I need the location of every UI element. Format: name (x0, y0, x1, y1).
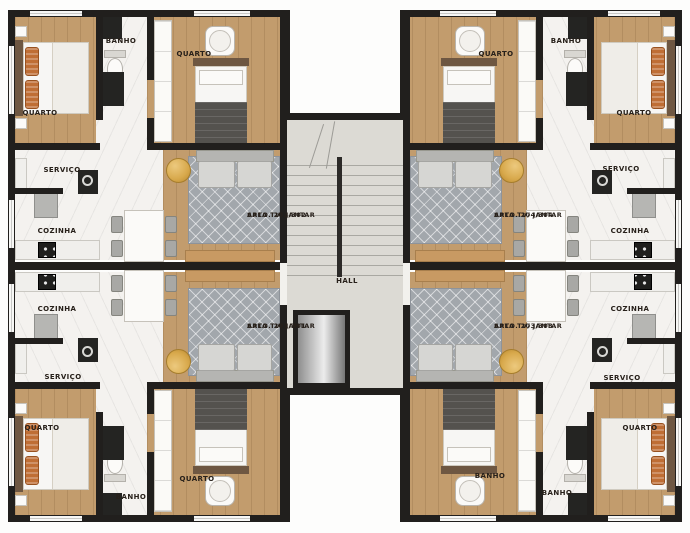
apto-number: APTO. 203/303 (494, 322, 553, 330)
apto-number: APTO. 201/301 (247, 322, 306, 330)
apto-number: APTO. 202/302 (247, 211, 306, 219)
apto-number: APTO. 204/304 (494, 211, 553, 219)
room-label-quarto: QUARTO (176, 50, 211, 58)
room-label-servico: SERVIÇO (602, 165, 639, 173)
room-label-quarto: QUARTO (616, 109, 651, 117)
room-label-banho: BANHO (551, 37, 581, 45)
room-label-banho: BANHO (116, 493, 146, 501)
room-label-banho: BANHO (475, 472, 505, 480)
room-label-quarto: QUARTO (179, 475, 214, 483)
room-label-banho: BANHO (106, 37, 136, 45)
room-label-quarto: QUARTO (24, 424, 59, 432)
room-label-quarto: QUARTO (22, 109, 57, 117)
room-label-servico: SERVIÇO (603, 374, 640, 382)
room-label-servico: SERVIÇO (44, 373, 81, 381)
hall-label: HALL (336, 277, 358, 285)
room-label-cozinha: COZINHA (38, 305, 77, 313)
floor-plan: QUARTO BANHO QUARTO SERVIÇO COZINHA QUAR… (0, 0, 690, 533)
room-label-quarto: QUARTO (622, 424, 657, 432)
room-label-quarto: QUARTO (478, 50, 513, 58)
room-label-servico: SERVIÇO (43, 166, 80, 174)
room-label-banho: BANHO (542, 489, 572, 497)
room-label-cozinha: COZINHA (611, 305, 650, 313)
labels-layer: QUARTO BANHO QUARTO SERVIÇO COZINHA QUAR… (0, 0, 690, 533)
room-label-cozinha: COZINHA (611, 227, 650, 235)
room-label-cozinha: COZINHA (38, 227, 77, 235)
